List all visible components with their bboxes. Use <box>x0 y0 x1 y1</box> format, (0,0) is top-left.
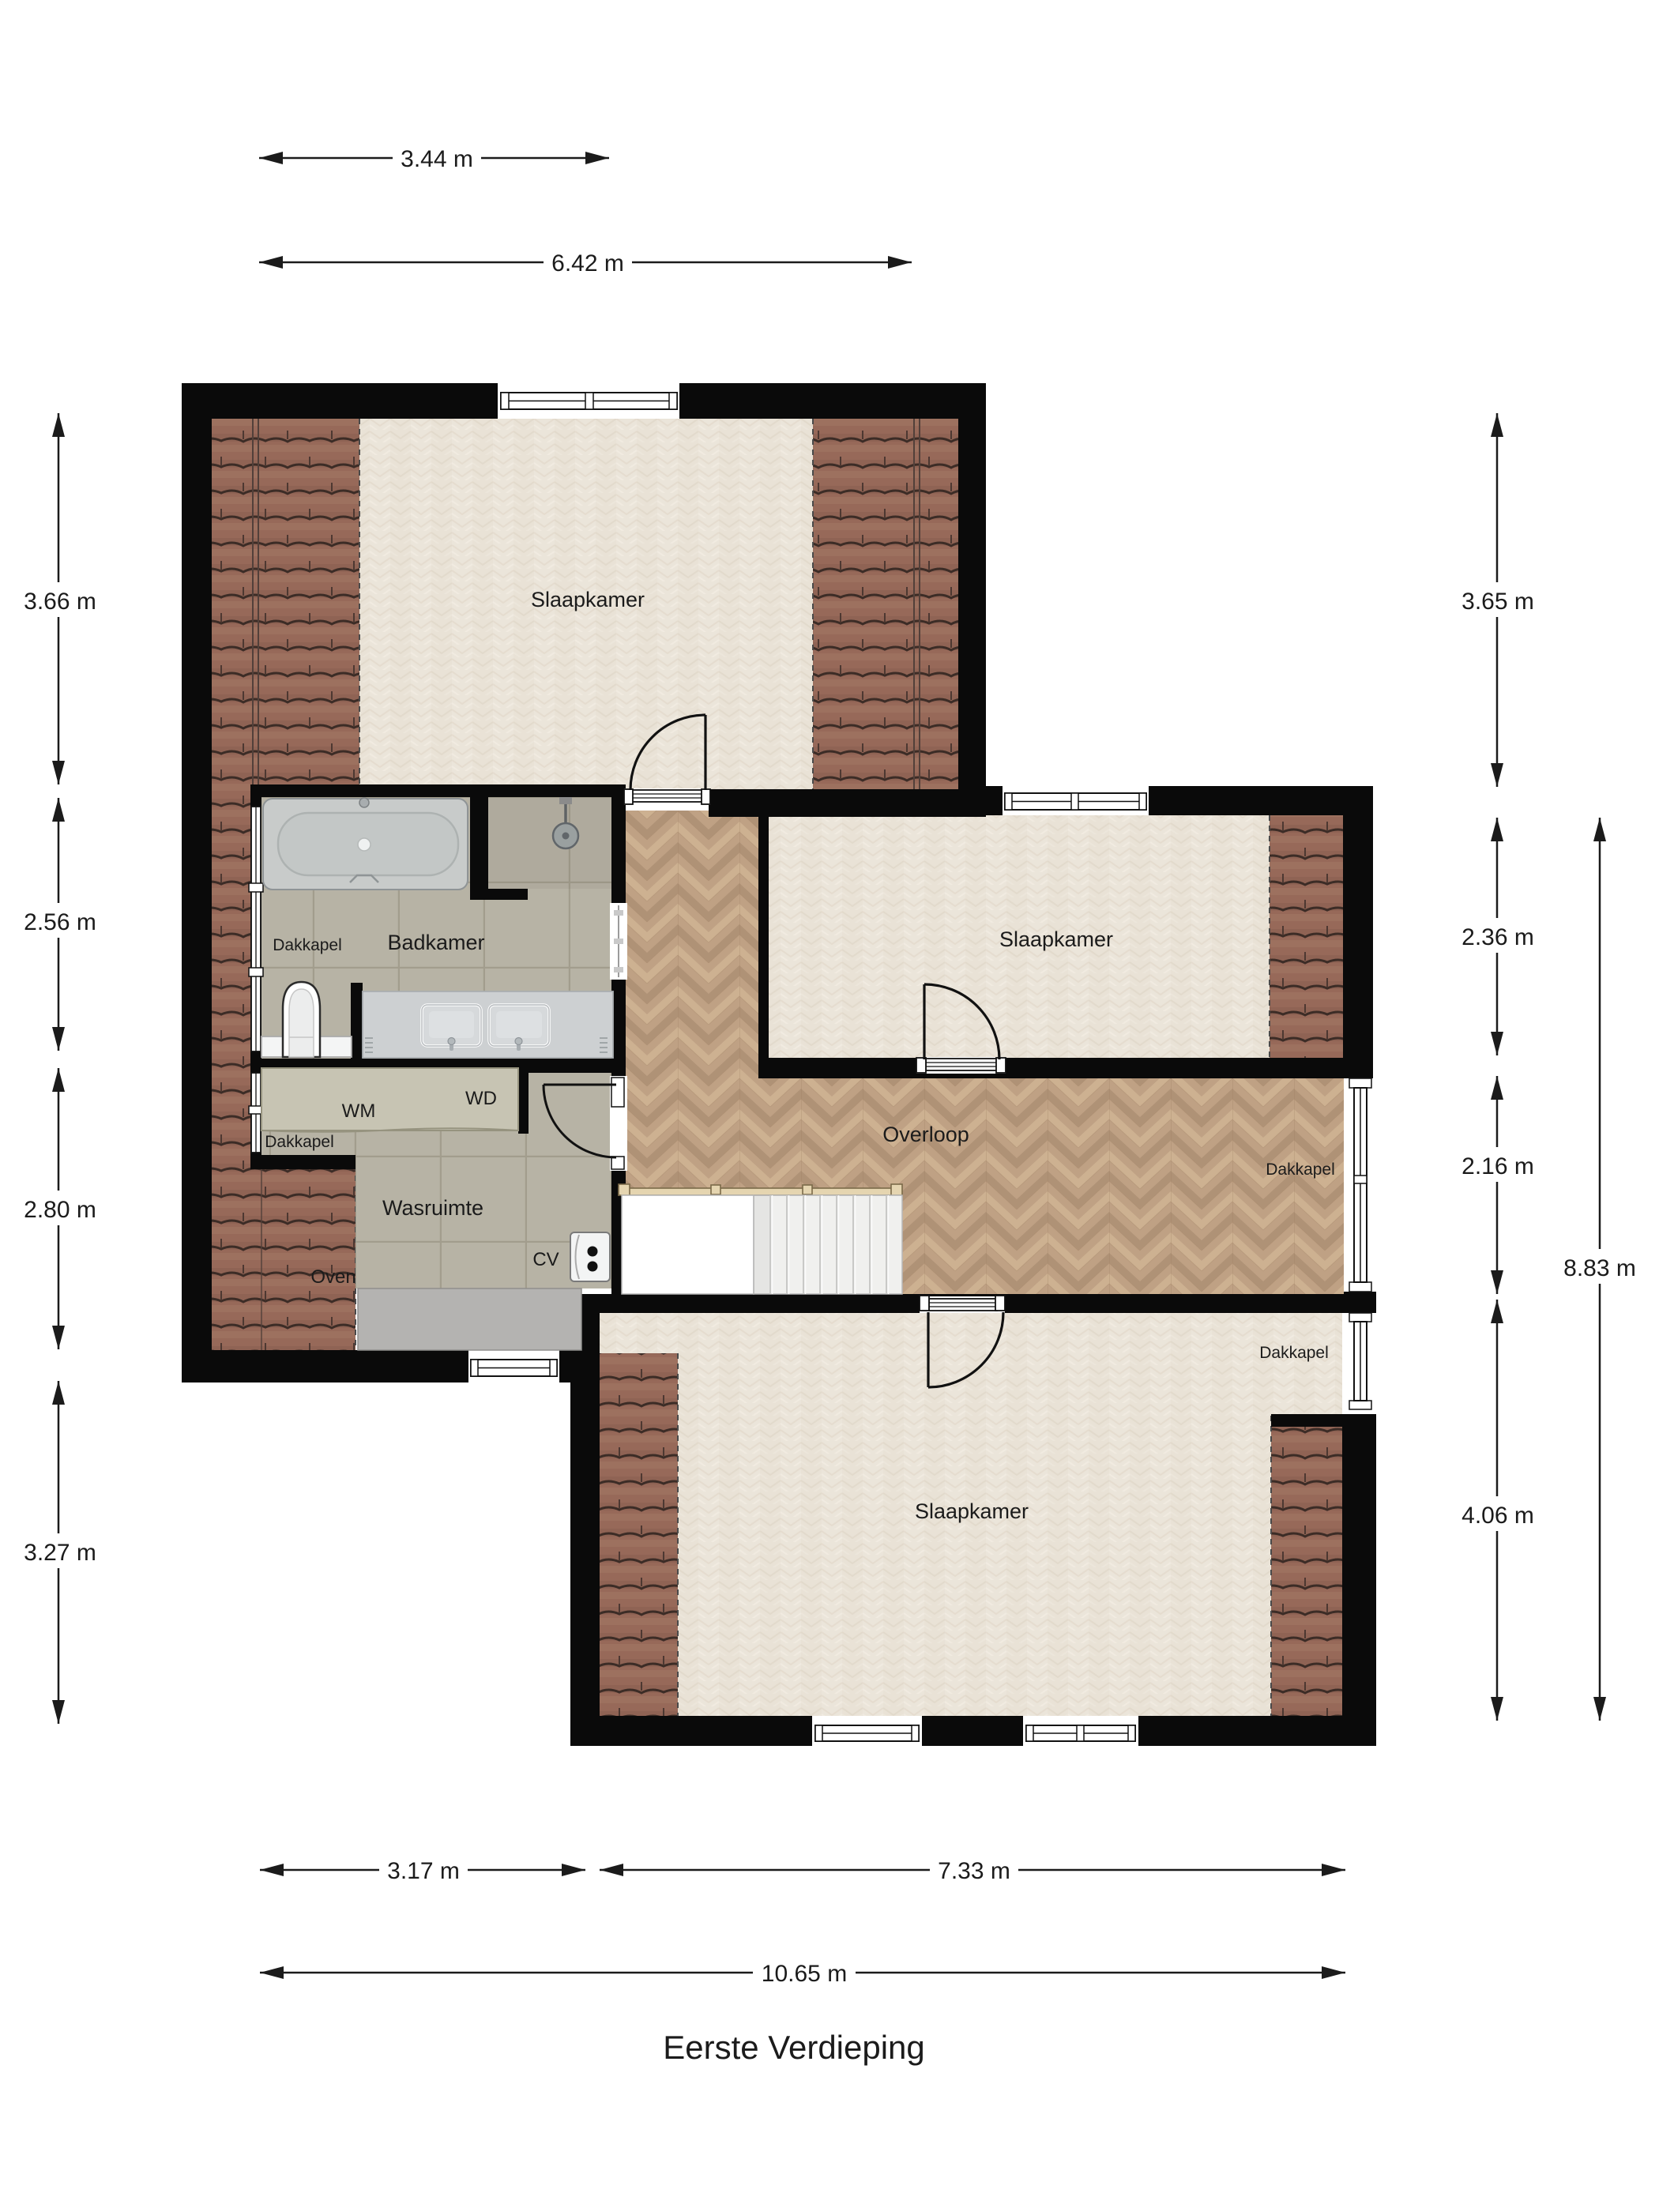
svg-text:Slaapkamer: Slaapkamer <box>531 588 645 611</box>
svg-text:3.65 m: 3.65 m <box>1461 589 1534 615</box>
svg-text:8.83 m: 8.83 m <box>1563 1255 1636 1281</box>
svg-text:6.42 m: 6.42 m <box>551 250 624 276</box>
svg-text:Dakkapel: Dakkapel <box>273 936 342 954</box>
svg-text:Eerste Verdieping: Eerste Verdieping <box>663 2029 925 2066</box>
svg-text:3.44 m: 3.44 m <box>401 146 473 172</box>
svg-text:Dakkapel: Dakkapel <box>1266 1161 1335 1179</box>
svg-text:7.33 m: 7.33 m <box>938 1858 1010 1884</box>
svg-text:Overloop: Overloop <box>882 1123 969 1146</box>
svg-text:CV: CV <box>532 1249 559 1270</box>
svg-text:Dakkapel: Dakkapel <box>265 1133 334 1151</box>
svg-text:2.16 m: 2.16 m <box>1461 1153 1534 1179</box>
svg-text:Oven: Oven <box>310 1266 355 1288</box>
svg-text:Slaapkamer: Slaapkamer <box>915 1499 1029 1523</box>
svg-text:Dakkapel: Dakkapel <box>1259 1344 1329 1362</box>
svg-text:2.80 m: 2.80 m <box>24 1197 96 1223</box>
svg-text:2.36 m: 2.36 m <box>1461 924 1534 950</box>
svg-text:4.06 m: 4.06 m <box>1461 1503 1534 1529</box>
svg-text:10.65 m: 10.65 m <box>762 1961 847 1987</box>
svg-text:3.17 m: 3.17 m <box>387 1858 460 1884</box>
svg-text:WD: WD <box>465 1088 497 1109</box>
svg-text:Slaapkamer: Slaapkamer <box>999 927 1113 951</box>
svg-text:WM: WM <box>342 1100 376 1122</box>
svg-text:Badkamer: Badkamer <box>387 931 484 954</box>
svg-text:3.27 m: 3.27 m <box>24 1540 96 1566</box>
svg-text:3.66 m: 3.66 m <box>24 589 96 615</box>
svg-text:2.56 m: 2.56 m <box>24 909 96 935</box>
svg-text:Wasruimte: Wasruimte <box>382 1196 483 1220</box>
